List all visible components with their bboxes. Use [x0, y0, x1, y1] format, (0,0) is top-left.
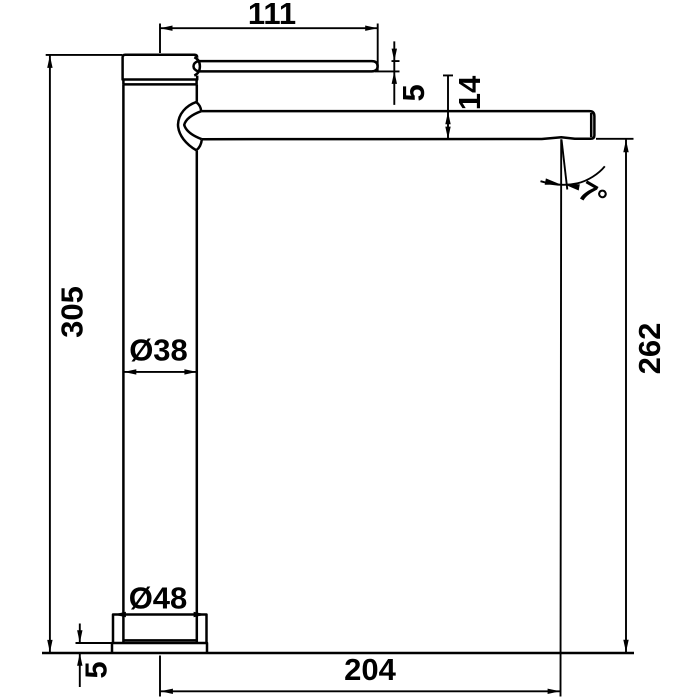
- svg-text:111: 111: [248, 0, 296, 31]
- svg-text:305: 305: [54, 286, 89, 338]
- svg-text:204: 204: [344, 652, 396, 687]
- svg-text:Ø48: Ø48: [129, 581, 188, 616]
- svg-text:Ø38: Ø38: [129, 333, 188, 368]
- svg-text:262: 262: [632, 323, 667, 375]
- svg-text:14: 14: [452, 75, 487, 110]
- svg-text:5: 5: [396, 84, 431, 101]
- svg-text:5: 5: [78, 661, 113, 678]
